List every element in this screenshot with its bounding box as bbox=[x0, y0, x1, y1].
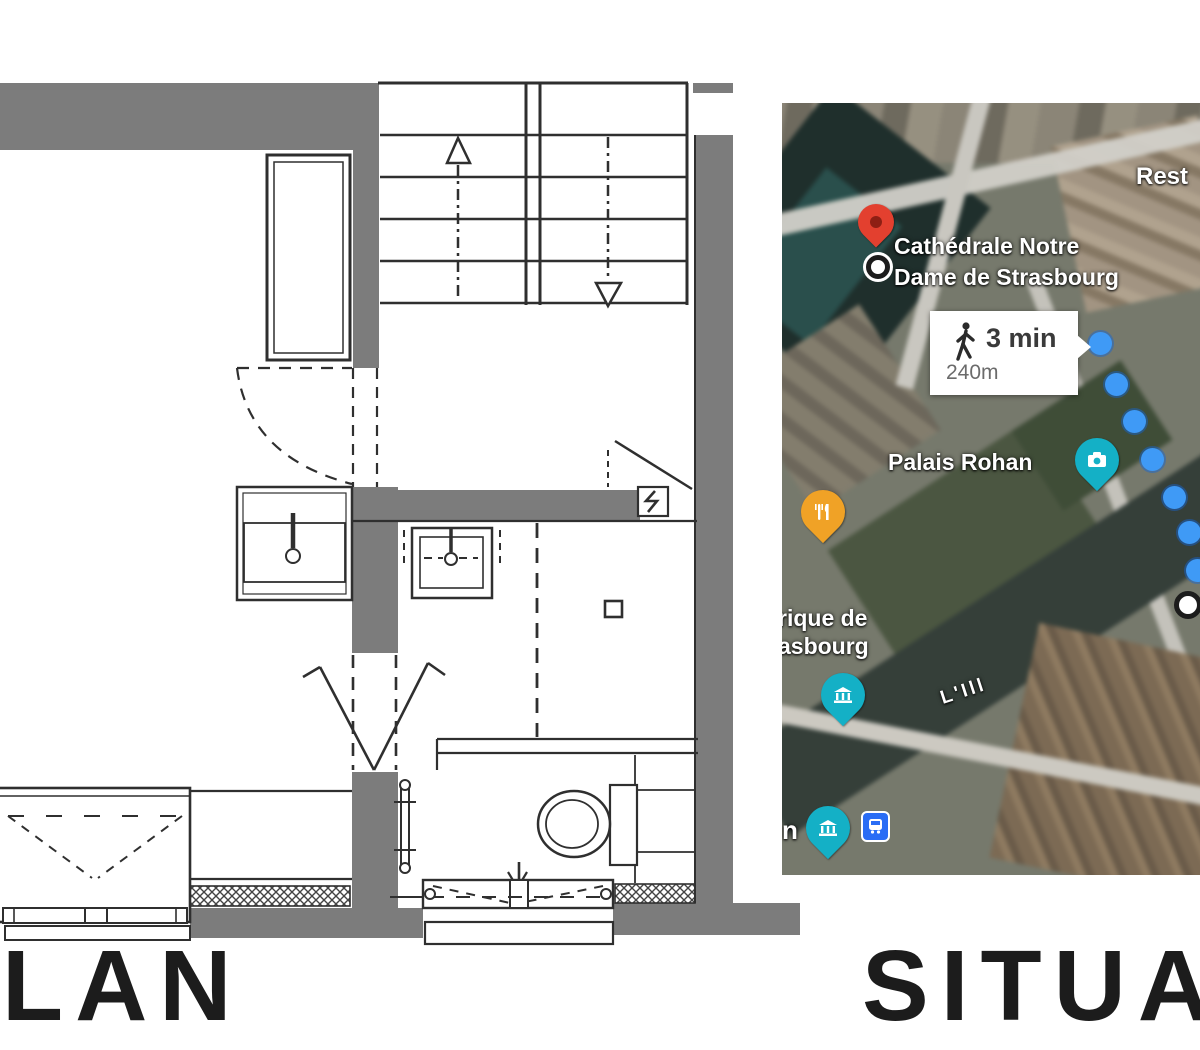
french-window bbox=[0, 788, 190, 940]
toilet bbox=[538, 755, 695, 883]
vent-grille bbox=[190, 886, 350, 906]
walking-directions-bubble: 3 min 240m bbox=[930, 311, 1078, 395]
museum-label-partial: rique de asbourg bbox=[782, 604, 869, 660]
stairs-down-arrow bbox=[596, 137, 621, 306]
museum-pin-icon bbox=[812, 664, 874, 726]
route-dot bbox=[1141, 448, 1164, 471]
entrance-door-swing bbox=[303, 655, 445, 770]
route-dot bbox=[1123, 410, 1146, 433]
electrical-panel bbox=[638, 487, 668, 516]
walk-distance: 240m bbox=[946, 361, 999, 385]
photo-spot-pin-icon bbox=[1066, 429, 1128, 491]
partition-dashed bbox=[537, 523, 622, 737]
washbasin bbox=[404, 528, 500, 598]
route-endpoint-marker bbox=[1174, 591, 1200, 619]
route-dot bbox=[1163, 486, 1186, 509]
situation-map: Cathédrale Notre Dame de Strasbourg Rest… bbox=[782, 103, 1200, 875]
route-dot bbox=[1105, 373, 1128, 396]
window bbox=[423, 862, 613, 944]
clipped-label-n: n bbox=[782, 815, 798, 846]
situation-caption-partial: SITUA bbox=[862, 936, 1200, 1036]
restaurant-label-partial: Rest bbox=[1136, 163, 1188, 191]
cathedral-label: Cathédrale Notre Dame de Strasbourg bbox=[894, 231, 1119, 293]
palais-rohan-label: Palais Rohan bbox=[888, 449, 1032, 476]
walking-person-icon bbox=[952, 321, 978, 363]
restaurant-pin-icon bbox=[792, 481, 854, 543]
route-dot bbox=[1089, 332, 1112, 355]
brochure-page: Cathédrale Notre Dame de Strasbourg Rest… bbox=[0, 0, 1200, 1050]
closet bbox=[267, 155, 350, 360]
floor-plan bbox=[0, 0, 810, 1050]
staircase bbox=[378, 83, 688, 306]
bus-stop-icon bbox=[861, 811, 890, 842]
plan-caption-partial: LAN bbox=[2, 936, 244, 1036]
sink bbox=[237, 487, 352, 600]
location-ring-marker bbox=[866, 255, 890, 279]
route-dot bbox=[1178, 521, 1200, 544]
entrance-door-leaf bbox=[615, 441, 692, 489]
counter bbox=[437, 739, 698, 770]
vent-grille bbox=[615, 884, 695, 903]
walk-duration: 3 min bbox=[986, 323, 1057, 354]
door-swing-left-room bbox=[237, 368, 377, 487]
school-pin-icon bbox=[797, 797, 859, 859]
